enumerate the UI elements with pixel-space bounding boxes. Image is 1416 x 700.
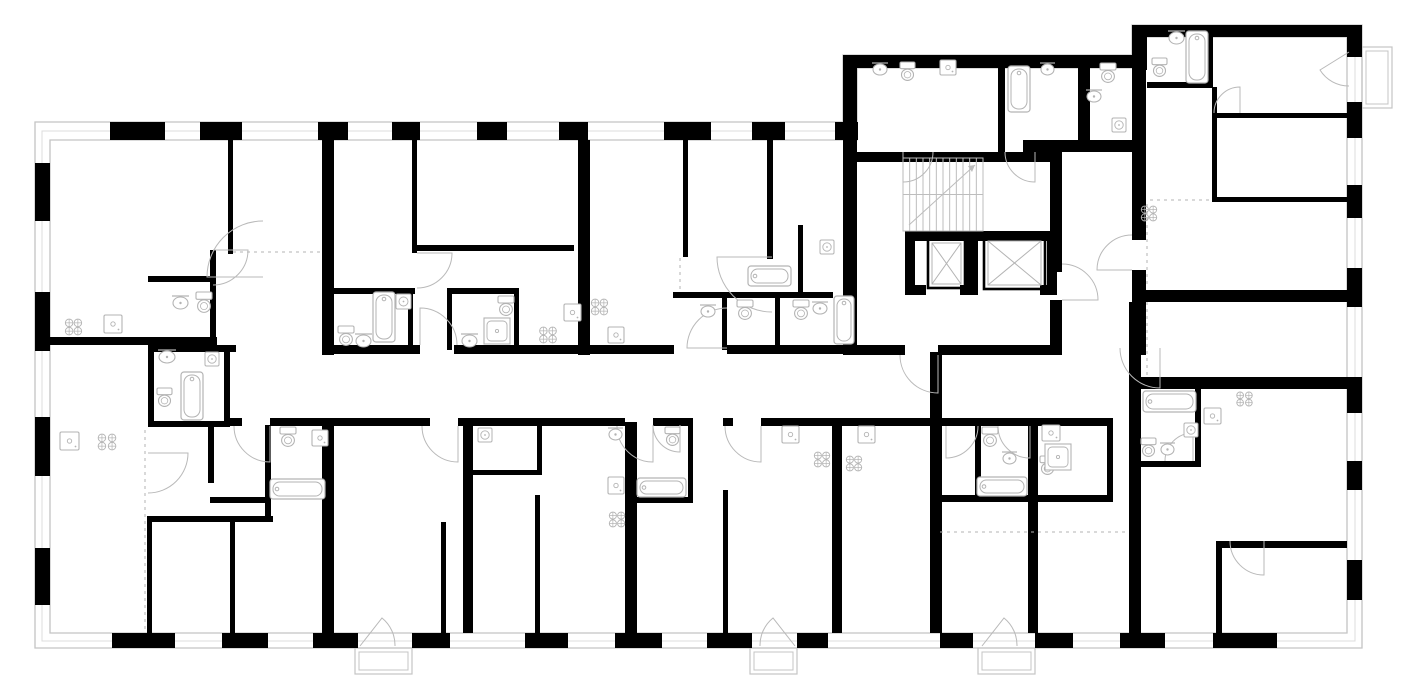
wall: [1120, 633, 1165, 648]
sink-icon: [60, 432, 79, 450]
wall: [727, 345, 843, 354]
wall: [930, 352, 942, 633]
elevators: [928, 237, 1045, 289]
wall: [797, 633, 828, 648]
wall: [843, 55, 1135, 68]
wall: [472, 470, 542, 475]
wall: [222, 633, 268, 648]
wall: [798, 225, 803, 292]
wall: [147, 516, 273, 522]
toilet-icon: [1100, 63, 1116, 82]
wall: [412, 245, 574, 251]
shower-head-icon: [396, 294, 411, 309]
stove-burners-icon: [65, 319, 81, 335]
bathtub-icon: [1143, 391, 1196, 412]
wall: [1078, 55, 1090, 152]
wall: [857, 345, 905, 355]
door-swing-arc: [417, 253, 452, 288]
staircase: [903, 158, 983, 231]
balcony-inner: [1366, 51, 1388, 104]
toilet-icon: [1152, 58, 1167, 76]
stove-burners-icon: [540, 327, 557, 343]
bathtub-icon: [637, 478, 686, 497]
wall: [1129, 302, 1141, 633]
washbasin-icon: [1160, 443, 1175, 455]
wall: [112, 633, 175, 648]
wall: [940, 418, 1037, 426]
stove-burners-icon: [1237, 392, 1252, 406]
shower-head-icon: [1184, 423, 1198, 437]
wall: [840, 418, 930, 426]
bathtub-icon: [373, 292, 395, 342]
wall: [1221, 541, 1347, 548]
balconies: [355, 47, 1392, 674]
wall: [1132, 290, 1362, 302]
wall: [35, 548, 50, 605]
sink-icon: [940, 60, 956, 75]
sink-icon: [312, 430, 328, 446]
bathtub-icon: [270, 479, 325, 499]
wall: [537, 420, 542, 475]
shower-tray-icon: [484, 318, 510, 344]
sink-icon: [1204, 408, 1221, 424]
wall: [723, 418, 733, 426]
wall: [905, 285, 926, 295]
toilet-icon: [498, 296, 514, 315]
bathtub-icon: [834, 296, 854, 344]
wall: [392, 122, 420, 140]
wall: [688, 425, 693, 502]
door-swing-arc: [1214, 87, 1240, 113]
door-swing-arc: [982, 618, 1017, 646]
wall: [1132, 25, 1362, 37]
wall: [441, 522, 446, 633]
wall: [230, 418, 242, 426]
wall: [1347, 102, 1362, 138]
wall: [514, 288, 519, 350]
wall: [270, 418, 334, 426]
wall: [578, 140, 590, 355]
door-swing-arc: [422, 426, 458, 462]
wall: [110, 122, 165, 140]
wall: [722, 296, 727, 350]
stove-burners-icon: [814, 452, 829, 467]
balcony-inner: [359, 652, 408, 670]
wall: [1347, 377, 1362, 413]
shower-head-icon: [1112, 118, 1126, 132]
door-swing-arc: [1062, 264, 1098, 300]
bathtub-icon: [1186, 31, 1208, 83]
wall: [1212, 87, 1217, 202]
balcony-inner: [982, 652, 1031, 670]
toilet-icon: [665, 427, 680, 445]
stove-burners-icon: [846, 456, 861, 471]
wall: [148, 276, 212, 282]
sink-icon: [104, 315, 122, 333]
wall: [683, 140, 688, 257]
bathtub-icon: [748, 266, 791, 286]
wall: [615, 633, 662, 648]
sink-icon: [858, 426, 875, 443]
wall: [45, 337, 217, 345]
toilet-icon: [196, 292, 212, 312]
wall: [1213, 113, 1347, 118]
wall: [230, 522, 235, 633]
washbasin-icon: [608, 428, 623, 440]
wall: [477, 122, 507, 140]
stove-burners-icon: [98, 434, 116, 450]
wall: [525, 633, 568, 648]
wall: [35, 417, 50, 476]
stove-burners-icon: [591, 299, 607, 315]
door-swing-arc: [1320, 52, 1349, 86]
wall: [625, 422, 637, 633]
wall: [318, 122, 348, 140]
toilet-icon: [982, 427, 998, 446]
balcony-inner: [754, 652, 793, 670]
washbasin-icon: [172, 296, 189, 309]
floor-plan-screenshot: [0, 0, 1416, 700]
wall: [334, 345, 420, 354]
wall: [632, 497, 693, 503]
wall: [1347, 25, 1362, 57]
wall: [855, 152, 1050, 162]
wall: [664, 122, 711, 140]
wall: [832, 418, 842, 633]
wall: [322, 140, 334, 355]
shower-head-icon: [820, 240, 834, 254]
sink-icon: [608, 477, 624, 494]
wall: [148, 345, 154, 427]
wall: [1107, 418, 1113, 502]
wall: [463, 426, 473, 633]
wall: [148, 345, 236, 352]
wall: [653, 418, 693, 426]
door-swing-arc: [1097, 235, 1132, 270]
wall: [761, 418, 840, 426]
door-swing-arc: [360, 618, 395, 646]
wall: [35, 163, 50, 221]
wall: [1132, 25, 1147, 70]
wall: [605, 418, 625, 426]
washbasin-icon: [700, 305, 716, 317]
wall: [752, 122, 785, 140]
floor-plan-svg: [0, 0, 1416, 700]
wall: [673, 292, 833, 298]
washbasin-icon: [461, 334, 478, 347]
wall: [938, 345, 1057, 355]
toilet-icon: [338, 326, 354, 345]
wall: [1035, 633, 1073, 648]
wall: [767, 140, 773, 259]
wall: [960, 285, 974, 295]
wall: [447, 288, 452, 350]
toilet-icon: [1141, 438, 1156, 456]
wall: [1141, 461, 1201, 467]
sink-icon: [564, 304, 581, 321]
walls: [35, 25, 1362, 648]
wall: [940, 633, 973, 648]
washbasin-icon: [355, 334, 372, 347]
door-swing-arc: [946, 426, 978, 458]
door-swing-arc: [213, 250, 248, 285]
wall: [228, 140, 233, 254]
fixtures: [60, 31, 1252, 527]
wall: [723, 490, 728, 633]
toilet-icon: [793, 300, 809, 319]
door-swing-arc: [148, 453, 188, 493]
sink-icon: [608, 327, 624, 343]
wall: [330, 288, 415, 294]
wall: [334, 418, 430, 426]
wall: [1347, 185, 1362, 218]
toilet-icon: [280, 427, 296, 446]
wall: [1023, 140, 1132, 152]
wall: [559, 122, 588, 140]
bathtub-icon: [977, 477, 1027, 496]
wall: [707, 633, 752, 648]
toilet-icon: [737, 300, 753, 319]
wall: [208, 425, 214, 483]
wall: [1216, 541, 1222, 633]
door-swing-arc: [234, 426, 270, 462]
washbasin-icon: [812, 302, 828, 314]
wall: [148, 421, 230, 427]
wall: [775, 296, 780, 350]
sink-icon: [1042, 425, 1060, 441]
wall: [313, 633, 358, 648]
wall: [412, 140, 417, 253]
wall: [447, 288, 519, 294]
wall: [1037, 495, 1113, 502]
door-swing-arc: [998, 426, 1030, 458]
wall: [1213, 633, 1277, 648]
wall: [998, 67, 1005, 152]
wall: [1135, 377, 1347, 389]
wall: [458, 418, 605, 426]
shower-head-icon: [205, 352, 219, 366]
toilet-icon: [157, 388, 172, 406]
toilet-icon: [900, 62, 915, 80]
door-swing-arc: [725, 426, 761, 462]
wall: [535, 495, 540, 633]
door-swing-arc: [760, 618, 795, 646]
sink-icon: [782, 426, 799, 443]
shower-tray-icon: [1045, 444, 1071, 470]
wall: [454, 345, 674, 354]
wall: [200, 122, 242, 140]
stove-burners-icon: [609, 512, 624, 527]
wall: [412, 633, 450, 648]
wall: [224, 345, 230, 427]
wall: [1213, 197, 1347, 202]
wall: [1347, 560, 1362, 600]
wall: [322, 426, 334, 633]
bathtub-icon: [1008, 66, 1030, 112]
bathtub-icon: [181, 372, 203, 420]
shower-head-icon: [478, 428, 492, 442]
wall: [147, 522, 152, 633]
wall: [1347, 461, 1362, 490]
wall: [210, 497, 270, 503]
